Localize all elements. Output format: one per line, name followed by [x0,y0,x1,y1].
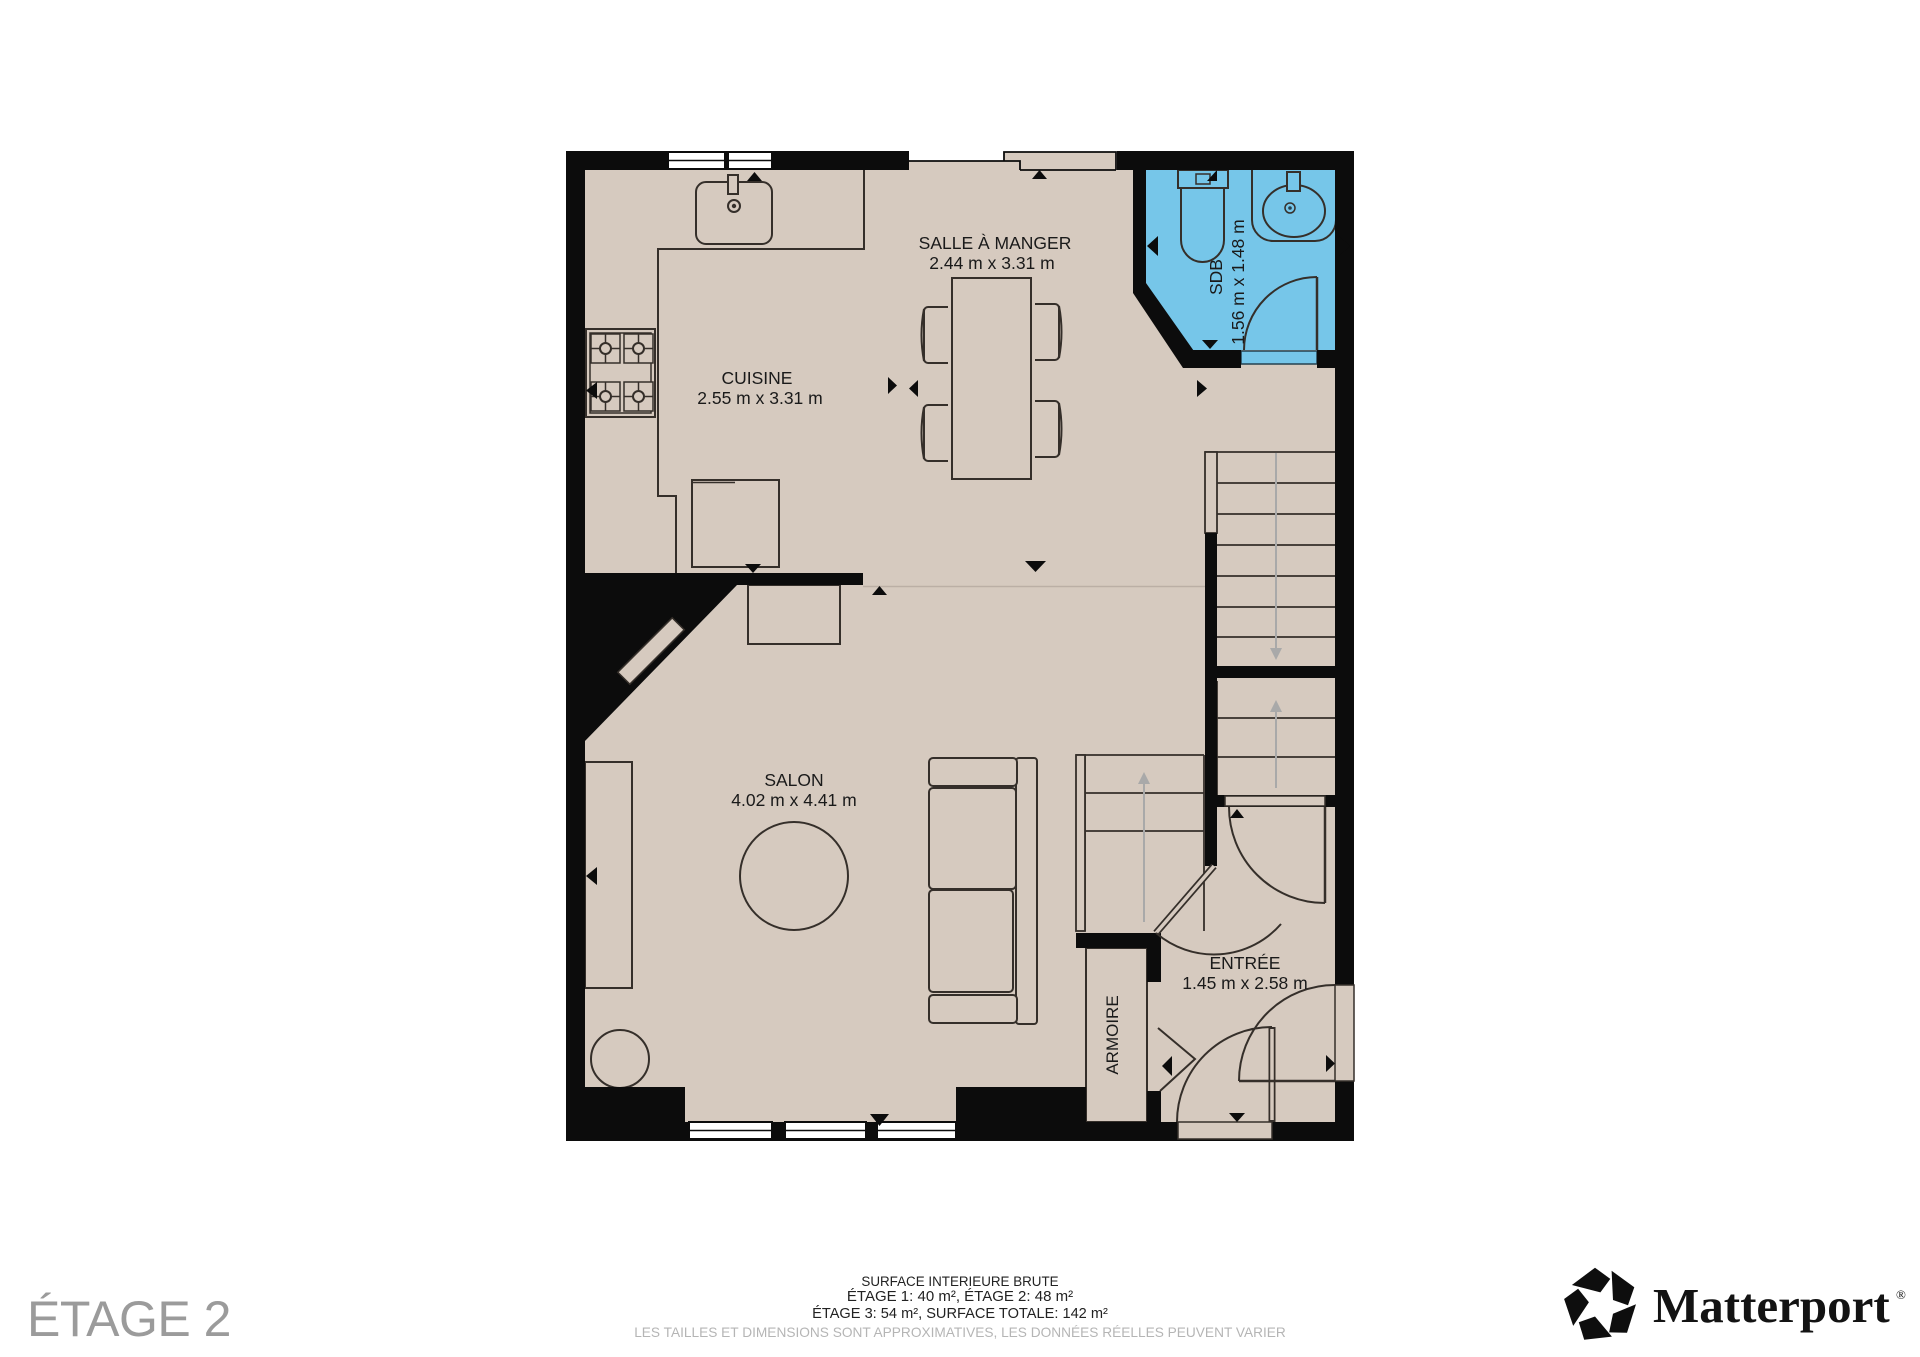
svg-text:2.44 m x 3.31 m: 2.44 m x 3.31 m [929,253,1054,273]
svg-text:SALLE À MANGER: SALLE À MANGER [919,233,1072,253]
svg-text:SDB: SDB [1206,259,1226,295]
svg-text:ÉTAGE 1: 40 m², ÉTAGE 2: 48 m²: ÉTAGE 1: 40 m², ÉTAGE 2: 48 m² [847,1288,1073,1305]
svg-text:2.55 m x 3.31 m: 2.55 m x 3.31 m [697,388,822,408]
svg-text:CUISINE: CUISINE [722,368,793,388]
svg-text:®: ® [1896,1287,1906,1302]
svg-text:ARMOIRE: ARMOIRE [1103,995,1122,1074]
svg-text:4.02 m x 4.41 m: 4.02 m x 4.41 m [731,790,856,810]
svg-text:SURFACE INTERIEURE BRUTE: SURFACE INTERIEURE BRUTE [861,1274,1058,1289]
svg-text:Matterport: Matterport [1653,1278,1890,1333]
svg-text:1.45 m x 2.58 m: 1.45 m x 2.58 m [1182,973,1307,993]
svg-text:ÉTAGE 3: 54 m², SURFACE TOTALE: ÉTAGE 3: 54 m², SURFACE TOTALE: 142 m² [812,1305,1108,1322]
svg-text:ÉTAGE 2: ÉTAGE 2 [27,1291,231,1347]
svg-text:SALON: SALON [764,770,823,790]
svg-text:1.56 m x 1.48 m: 1.56 m x 1.48 m [1228,219,1248,344]
svg-text:LES TAILLES ET DIMENSIONS SONT: LES TAILLES ET DIMENSIONS SONT APPROXIMA… [634,1325,1286,1340]
svg-text:ENTRÉE: ENTRÉE [1210,953,1281,973]
